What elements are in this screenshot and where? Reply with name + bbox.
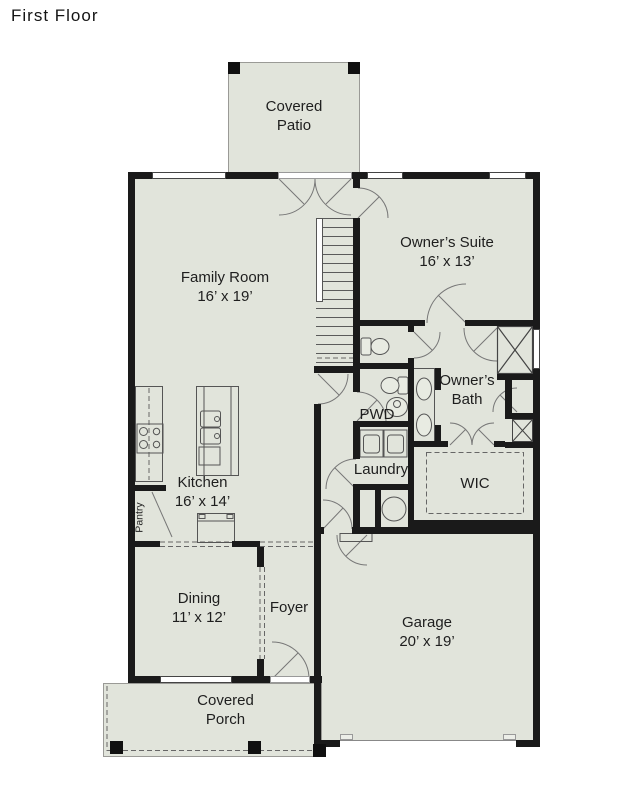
wall-segment <box>352 527 533 534</box>
window <box>160 676 232 683</box>
wall-segment <box>505 442 533 448</box>
wall-segment <box>353 489 360 527</box>
patio-door-opening <box>278 172 352 179</box>
wall-segment <box>375 490 381 527</box>
garage-label: Garage20’ x 19’ <box>366 613 488 651</box>
floor-plan: First Floor <box>0 0 638 793</box>
window <box>533 329 540 369</box>
laundry-label: Laundry <box>330 460 432 479</box>
wall-segment <box>257 659 264 676</box>
vanity-double-sink <box>414 369 435 446</box>
wall-segment <box>413 441 448 447</box>
front-door-opening <box>270 676 310 683</box>
wall-segment <box>314 404 321 747</box>
garage-door-jamb <box>503 734 516 740</box>
kitchen-label: Kitchen16’ x 14’ <box>130 473 275 511</box>
stove-icon <box>137 424 163 453</box>
owners-bath-label: Owner’sBath <box>436 371 498 409</box>
foyer-label: Foyer <box>259 598 319 617</box>
window <box>489 172 526 179</box>
linen-closet-icon <box>513 420 533 442</box>
wall-segment <box>408 520 533 527</box>
garage-door-jamb <box>340 734 353 740</box>
dining-label: Dining11’ x 12’ <box>138 589 260 627</box>
wall-segment <box>408 326 414 332</box>
wall-segment <box>353 326 360 392</box>
kitchen-island <box>197 387 239 476</box>
wic-label: WIC <box>434 474 516 493</box>
window <box>367 172 403 179</box>
pwd-label: PWD <box>352 405 402 424</box>
shower-icon <box>498 327 533 374</box>
wall-segment <box>232 541 260 547</box>
base-cabinet <box>198 514 235 543</box>
wall-segment <box>353 320 425 326</box>
washer-icon <box>360 430 383 457</box>
dryer-icon <box>384 430 407 457</box>
wall-segment <box>497 374 533 380</box>
wall-segment <box>128 172 135 683</box>
wall-segment <box>353 179 360 188</box>
wall-segment <box>494 441 505 447</box>
toilet-icon <box>361 338 389 355</box>
wall-segment <box>505 413 533 419</box>
family-room-label: Family Room16’ x 19’ <box>125 268 325 306</box>
wall-segment <box>465 320 533 326</box>
window <box>152 172 226 179</box>
wall-segment <box>315 527 324 534</box>
plan-title: First Floor <box>11 6 99 26</box>
porch-post <box>248 741 261 754</box>
wall-segment <box>128 676 160 683</box>
wall-segment <box>232 676 270 683</box>
wall-segment <box>505 380 512 413</box>
porch-post <box>348 62 360 74</box>
garage-entry-step <box>340 534 372 542</box>
owners-suite-label: Owner’s Suite16’ x 13’ <box>347 233 547 271</box>
covered-porch-label: CoveredPorch <box>153 691 298 729</box>
toilet-icon <box>381 377 408 394</box>
porch-post <box>110 741 123 754</box>
wall-segment <box>257 547 264 567</box>
porch-post <box>228 62 240 74</box>
wall-segment <box>353 484 414 490</box>
garage-door <box>340 740 516 747</box>
wall-segment <box>516 740 540 747</box>
wall-segment <box>353 427 360 459</box>
covered-patio-label: CoveredPatio <box>228 97 360 135</box>
pantry-label: Pantry <box>131 490 150 546</box>
water-heater-icon <box>382 497 406 521</box>
wall-segment <box>353 363 413 369</box>
porch-post <box>313 744 326 757</box>
